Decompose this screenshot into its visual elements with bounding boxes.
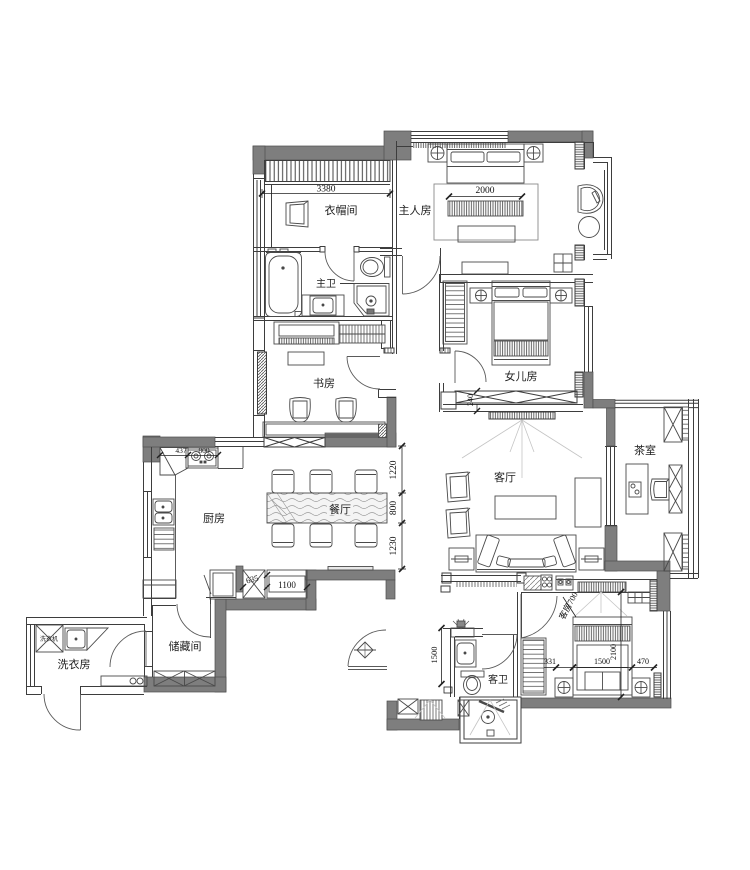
svg-text:1100: 1100: [278, 580, 296, 590]
svg-text:1220: 1220: [389, 460, 399, 479]
svg-text:1500: 1500: [594, 657, 610, 666]
svg-text:客卫: 客卫: [488, 673, 508, 686]
svg-text:635: 635: [245, 573, 260, 586]
svg-text:餐厅: 餐厅: [329, 502, 351, 516]
svg-text:437: 437: [175, 446, 187, 455]
svg-text:储藏间: 储藏间: [169, 639, 202, 653]
svg-text:3380: 3380: [317, 185, 336, 195]
svg-text:2100: 2100: [609, 644, 618, 660]
svg-text:客房700: 客房700: [557, 590, 580, 621]
svg-text:主人房: 主人房: [399, 204, 432, 217]
svg-text:洗衣机: 洗衣机: [40, 635, 58, 643]
svg-text:厨房: 厨房: [203, 512, 225, 525]
svg-text:800: 800: [389, 501, 399, 516]
svg-text:240: 240: [466, 394, 475, 406]
svg-text:茶室: 茶室: [634, 443, 656, 457]
svg-text:1230: 1230: [389, 536, 399, 555]
svg-text:洗衣房: 洗衣房: [58, 657, 91, 671]
svg-text:女儿房: 女儿房: [505, 369, 538, 383]
svg-text:书房: 书房: [313, 377, 335, 390]
svg-text:470: 470: [637, 657, 649, 666]
svg-text:1500: 1500: [429, 647, 439, 664]
svg-text:2000: 2000: [476, 186, 495, 196]
svg-text:衣帽间: 衣帽间: [325, 203, 358, 217]
svg-text:800: 800: [198, 446, 210, 455]
svg-text:客厅: 客厅: [494, 470, 516, 484]
svg-text:主卫: 主卫: [316, 278, 336, 290]
svg-text:331: 331: [544, 657, 556, 666]
